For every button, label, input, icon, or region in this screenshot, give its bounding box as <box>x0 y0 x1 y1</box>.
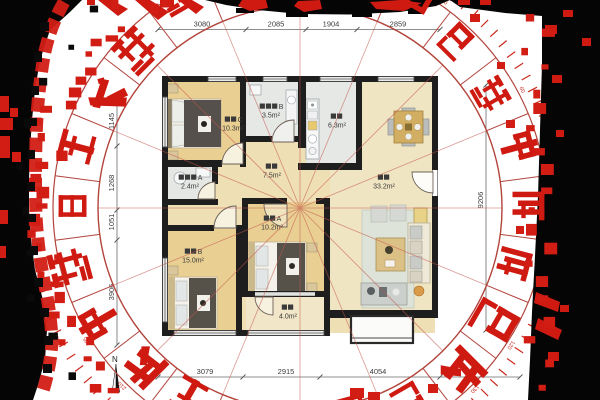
svg-text:2859: 2859 <box>390 20 407 29</box>
svg-text:3079: 3079 <box>197 367 214 376</box>
svg-text:1904: 1904 <box>323 20 340 29</box>
svg-text:10.3m²: 10.3m² <box>222 126 244 133</box>
svg-text:2915: 2915 <box>278 367 295 376</box>
svg-text:6.3m²: 6.3m² <box>328 123 347 130</box>
svg-text:2085: 2085 <box>268 20 285 29</box>
svg-text:1268: 1268 <box>107 175 116 192</box>
svg-text:3080: 3080 <box>194 20 211 29</box>
svg-text:A: A <box>198 175 203 182</box>
svg-text:1051: 1051 <box>107 214 116 231</box>
svg-text:2.4m²: 2.4m² <box>181 184 200 191</box>
svg-text:3.5m²: 3.5m² <box>262 113 281 120</box>
svg-text:N: N <box>112 355 118 364</box>
svg-text:15.0m²: 15.0m² <box>182 258 204 265</box>
svg-text:4.0m²: 4.0m² <box>279 314 298 321</box>
svg-text:C: C <box>238 117 243 124</box>
svg-text:B: B <box>279 104 284 111</box>
svg-text:9206: 9206 <box>476 192 485 209</box>
svg-text:33.2m²: 33.2m² <box>373 184 395 191</box>
svg-text:4054: 4054 <box>370 367 387 376</box>
